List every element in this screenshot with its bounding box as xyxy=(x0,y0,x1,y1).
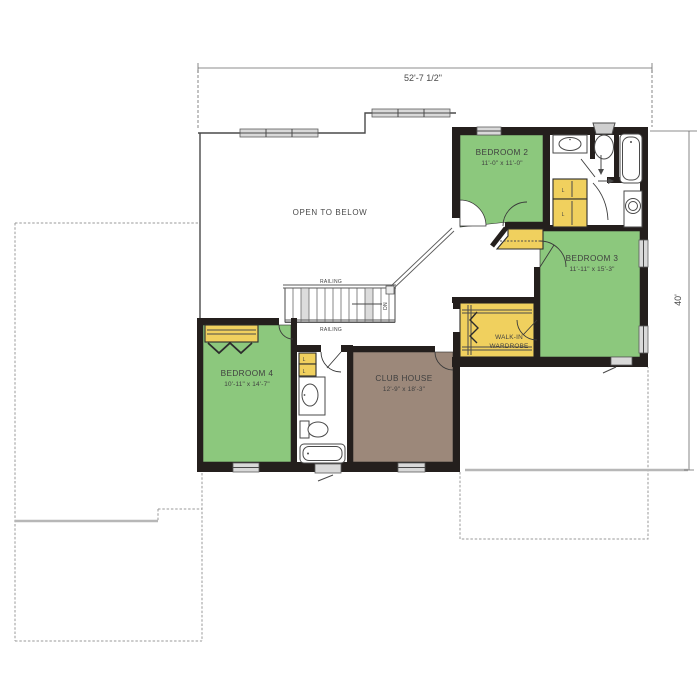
wall-bedroom2-right xyxy=(543,127,550,229)
open-to-below-label: OPEN TO BELOW xyxy=(293,208,368,217)
bedroom3-size: 11'-11" x 15'-3" xyxy=(569,266,614,273)
staircase: DN RAILING RAILING xyxy=(283,228,454,333)
wc-door-leaf xyxy=(581,159,595,177)
window-top-mid-group xyxy=(372,109,450,117)
wardrobe-name-line1: WALK-IN xyxy=(495,334,523,341)
outline-bottom-right xyxy=(460,367,648,539)
window-bedroom4-bottom xyxy=(233,463,259,472)
sink-vanity-3 xyxy=(299,377,325,415)
wall-bedroom2-left xyxy=(452,127,460,218)
club-house-size: 12'-9" x 18'-3" xyxy=(383,386,425,393)
linen-closets-main-bath: L L xyxy=(553,179,587,227)
linen-label-1: L xyxy=(562,188,565,194)
wall-bedroom4-top xyxy=(197,318,279,325)
toilet-2 xyxy=(300,421,328,438)
wall-bedroom3-left-lower xyxy=(534,267,540,360)
bath2-door xyxy=(321,352,341,372)
railing-diagonal xyxy=(390,228,454,290)
linen-label-4: L xyxy=(303,369,306,375)
bedroom3-floor xyxy=(540,231,640,357)
linen-label-2: L xyxy=(562,212,565,218)
bedroom4-name: BEDROOM 4 xyxy=(221,369,274,378)
railing-label-top: RAILING xyxy=(320,279,342,285)
outline-step-left xyxy=(158,509,202,521)
window-bath2-bottom xyxy=(315,464,341,481)
sink-vanity-2 xyxy=(624,191,642,227)
wall-wardrobe-left-upper xyxy=(453,297,460,309)
bath2-fixtures xyxy=(299,377,345,463)
bath3-door-arc xyxy=(593,183,608,220)
stair-tread-shaded-2 xyxy=(365,289,373,321)
width-dimension-label: 52'-7 1/2" xyxy=(404,73,442,83)
linen-closet-bath2: L L xyxy=(299,353,316,376)
depth-dimension-label: 40' xyxy=(673,294,683,306)
bedroom4-size: 10'-11" x 14'-7" xyxy=(224,381,270,388)
window-top-left-group xyxy=(240,129,318,137)
railing-top-line xyxy=(283,285,396,288)
floor-plan-canvas: 52'-7 1/2" 40' OPEN TO BELOW DN RAILING … xyxy=(0,0,700,700)
floor-plan-svg: 52'-7 1/2" 40' OPEN TO BELOW DN RAILING … xyxy=(0,0,700,700)
down-label: DN xyxy=(383,302,389,310)
bedroom2-size: 11'-0" x 11'-0" xyxy=(481,160,522,167)
linen-label-3: L xyxy=(303,357,306,363)
window-bedroom3-right-1 xyxy=(639,240,648,267)
bedroom3-name: BEDROOM 3 xyxy=(566,254,619,263)
wall-right-2 xyxy=(640,267,648,326)
railing-label-bottom: RAILING xyxy=(320,327,342,333)
club-house-name: CLUB HOUSE xyxy=(375,374,432,383)
stair-tread-shaded-1 xyxy=(301,289,309,321)
wardrobe-name-line2: WARDROBE xyxy=(490,343,529,350)
open-to-below-area: OPEN TO BELOW xyxy=(198,109,456,318)
wall-club-right xyxy=(453,332,460,472)
bedroom2-name: BEDROOM 2 xyxy=(476,148,529,157)
bathtub-2 xyxy=(300,444,345,463)
sink-vanity-1 xyxy=(553,135,587,153)
railing-post xyxy=(386,286,394,294)
dimension-top: 52'-7 1/2" xyxy=(198,63,652,130)
wall-club-top xyxy=(347,346,435,352)
window-club-bottom xyxy=(398,463,425,472)
dimension-top-line xyxy=(198,63,652,73)
wall-bedroom4-bath xyxy=(291,318,297,462)
bedroom4-floor xyxy=(203,325,291,462)
wall-bedroom4-left xyxy=(197,318,203,472)
wall-wardrobe-top xyxy=(452,297,540,303)
wall-bath-club xyxy=(347,345,353,462)
wall-bath-divider-2 xyxy=(614,135,619,177)
window-bedroom2-top xyxy=(477,127,501,135)
club-house-floor xyxy=(353,352,453,462)
wall-bath-top-left xyxy=(297,345,321,352)
dimension-right: 40' xyxy=(650,131,697,470)
window-bedroom3-right-2 xyxy=(639,326,648,353)
toilet-1 xyxy=(593,123,615,159)
bathtub-1 xyxy=(620,134,642,183)
